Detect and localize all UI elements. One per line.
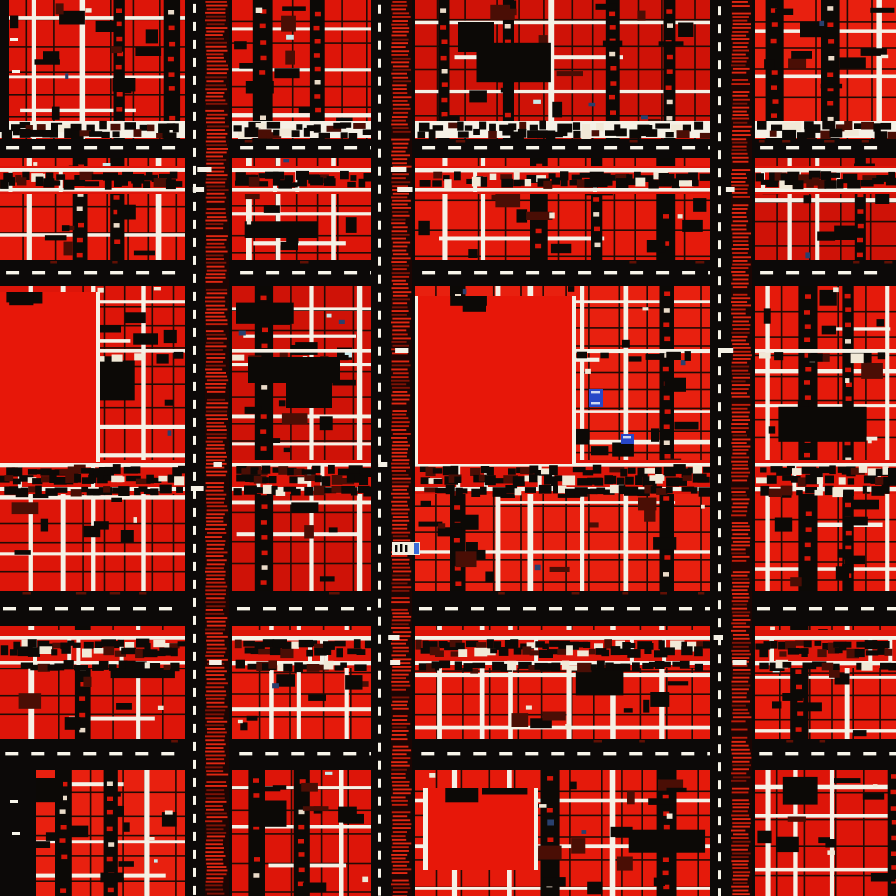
city-map-canvas [0,0,896,896]
aerial-city-map-figure [0,0,896,896]
